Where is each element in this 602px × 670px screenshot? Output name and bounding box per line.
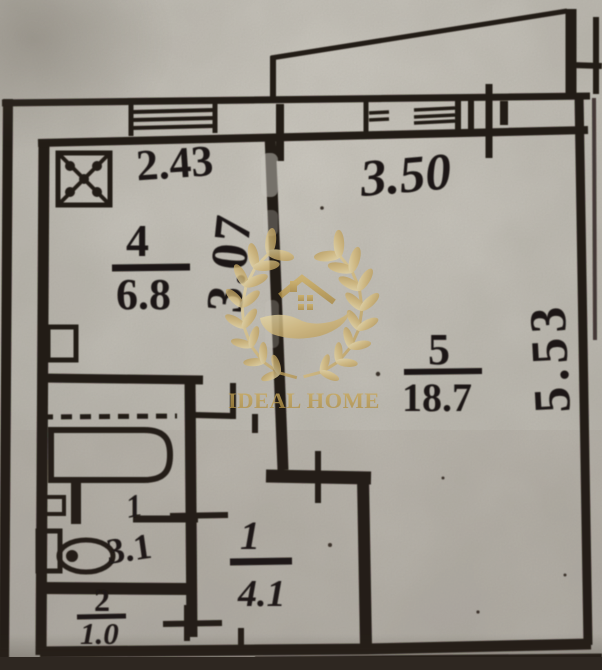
svg-text:IDEAL HOME: IDEAL HOME (228, 388, 380, 413)
svg-text:18.7: 18.7 (402, 375, 472, 420)
svg-text:6.8: 6.8 (116, 270, 171, 319)
svg-text:5.53: 5.53 (519, 301, 582, 415)
svg-text:3.50: 3.50 (357, 143, 454, 208)
svg-text:5: 5 (428, 325, 450, 374)
svg-text:4: 4 (126, 215, 149, 266)
